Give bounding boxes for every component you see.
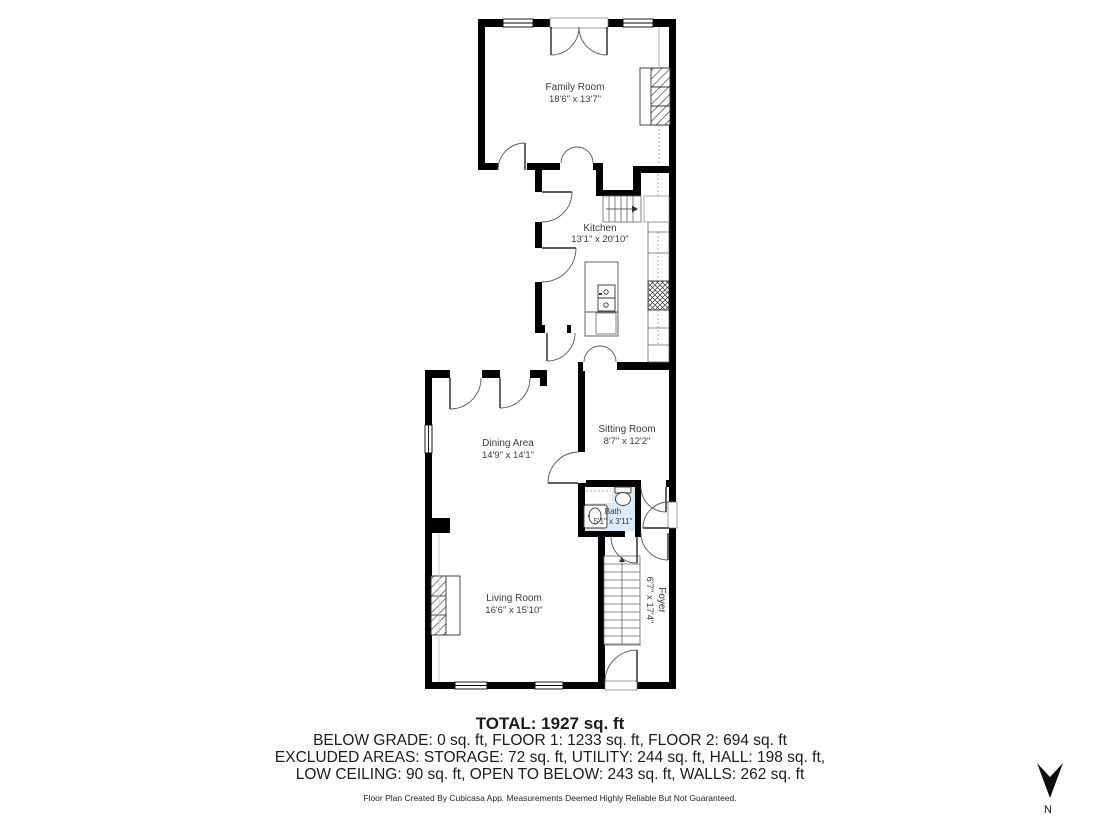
- kitchen-passage-door: [547, 333, 575, 361]
- family-room-dims: 18'6" x 13'7": [549, 94, 601, 105]
- living-room-dims: 16'6" x 15'10": [485, 605, 542, 616]
- area-summary: TOTAL: 1927 sq. ft BELOW GRADE: 0 sq. ft…: [0, 714, 1100, 803]
- kitchen-island: [585, 262, 618, 336]
- kitchen-left-door-2: [542, 248, 576, 282]
- front-door: [605, 650, 637, 682]
- family-room-fireplace: [640, 27, 670, 163]
- sitting-room-label: Sitting Room: [598, 424, 655, 435]
- stairs-upper: [603, 196, 641, 222]
- dining-area-dims: 14'9" x 14'1": [482, 450, 534, 461]
- stairs-foyer: [604, 556, 641, 645]
- kitchen-left-door-1: [542, 192, 572, 222]
- living-room-label: Living Room: [486, 593, 542, 604]
- kitchen-dims: 13'1" x 20'10": [571, 234, 628, 245]
- hall-door: [641, 533, 668, 560]
- excluded-areas-2: LOW CEILING: 90 sq. ft, OPEN TO BELOW: 2…: [0, 767, 1100, 784]
- total-area: TOTAL: 1927 sq. ft: [0, 714, 1100, 733]
- disclaimer: Floor Plan Created By Cubicasa App. Meas…: [0, 793, 1100, 803]
- family-room-label: Family Room: [546, 82, 605, 93]
- sitting-room-door: [548, 452, 578, 483]
- dining-door-1: [450, 378, 481, 409]
- living-room-fireplace: [431, 533, 460, 682]
- excluded-areas-1: EXCLUDED AREAS: STORAGE: 72 sq. ft, UTIL…: [0, 750, 1100, 767]
- side-entry-door: [643, 502, 669, 528]
- toilet-icon: [615, 487, 631, 506]
- floor-plan: Family Room 18'6" x 13'7" Kitchen 13'1" …: [0, 0, 1100, 825]
- family-room-double-door-top: [551, 27, 607, 55]
- bath-label: Bath: [605, 507, 621, 516]
- foyer-label: Foyer: [656, 587, 667, 613]
- floor-areas: BELOW GRADE: 0 sq. ft, FLOOR 1: 1233 sq.…: [0, 733, 1100, 750]
- family-room-double-door-bottom: [561, 147, 593, 163]
- dining-door-2: [500, 378, 530, 408]
- bath-dims: 5'1" x 3'11": [594, 517, 633, 526]
- sitting-room-dims: 8'7" x 12'2": [604, 436, 651, 447]
- kitchen-label: Kitchen: [583, 223, 616, 234]
- floor-plan-page: Family Room 18'6" x 13'7" Kitchen 13'1" …: [0, 0, 1100, 825]
- north-label: N: [1044, 804, 1052, 816]
- foyer-dims: 6'7" x 17'4": [644, 577, 655, 624]
- sitting-to-foyer-door: [641, 487, 666, 512]
- kitchen-counter: [644, 174, 669, 362]
- dining-area-label: Dining Area: [482, 438, 534, 449]
